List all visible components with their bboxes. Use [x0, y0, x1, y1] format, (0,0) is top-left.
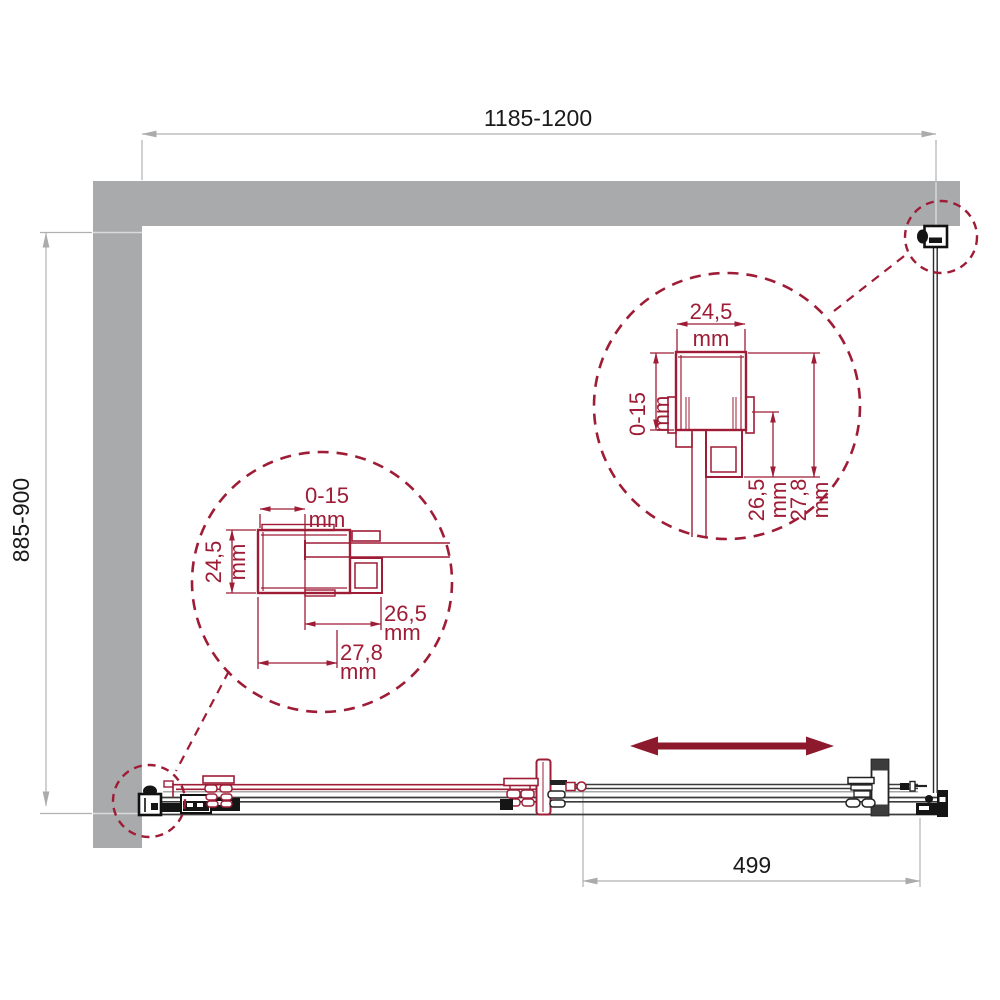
- detail-left-width-label: 24,5: [201, 541, 226, 584]
- right-corner-bracket: [900, 782, 948, 818]
- detail-left-outer-unit: mm: [340, 659, 377, 684]
- overall-width-label: 1185-1200: [484, 105, 592, 131]
- detail-right-adjust-label: 0-15: [625, 392, 650, 436]
- technical-drawing-canvas: 1185-1200 885-900 499: [0, 0, 1000, 1000]
- center-roller-carriage: [500, 760, 586, 815]
- detail-right-outer-unit: mm: [808, 482, 833, 519]
- wall-profile-section-right: [668, 352, 754, 537]
- detail-left-width-unit: mm: [225, 544, 250, 581]
- slide-direction-arrow: [630, 737, 834, 756]
- detail-view-right: 24,5 mm 0-15 mm: [625, 299, 833, 537]
- fixed-glass-clamp: [550, 780, 567, 785]
- stopper-bolt: [566, 783, 575, 791]
- anti-jump-block: [500, 799, 513, 810]
- wall-left: [93, 181, 142, 848]
- wall-top: [93, 181, 960, 226]
- arrowhead-left: [630, 737, 658, 756]
- side-glass-panel: [934, 248, 938, 793]
- door-travel-label: 499: [733, 852, 771, 878]
- wall-profile-section-left: [258, 525, 450, 597]
- roller-cap-top: [872, 760, 889, 771]
- shower-enclosure-diagram: 1185-1200 885-900 499: [0, 0, 1000, 1000]
- top-wall-bracket: [917, 226, 947, 247]
- detail-left-inner-unit: mm: [384, 620, 421, 645]
- detail-circles: [113, 201, 977, 837]
- door-glass-end-left: [164, 781, 173, 797]
- right-roller-carriage: [846, 760, 889, 816]
- detail-view-left: 0-15 mm 24,5 mm 26,5 mm: [201, 483, 450, 684]
- overall-depth-label: 885-900: [8, 478, 34, 562]
- bracket-knob: [917, 230, 928, 244]
- detail-right-width-unit: mm: [693, 326, 730, 351]
- detail-left-adjust-label: 0-15: [305, 483, 349, 508]
- arrowhead-right: [806, 737, 834, 756]
- detail-right-width-label: 24,5: [690, 299, 733, 324]
- adjustment-bar: [161, 803, 180, 812]
- detail-right-adjust-unit: mm: [649, 396, 674, 433]
- detail-left-adjust-unit: mm: [309, 507, 346, 532]
